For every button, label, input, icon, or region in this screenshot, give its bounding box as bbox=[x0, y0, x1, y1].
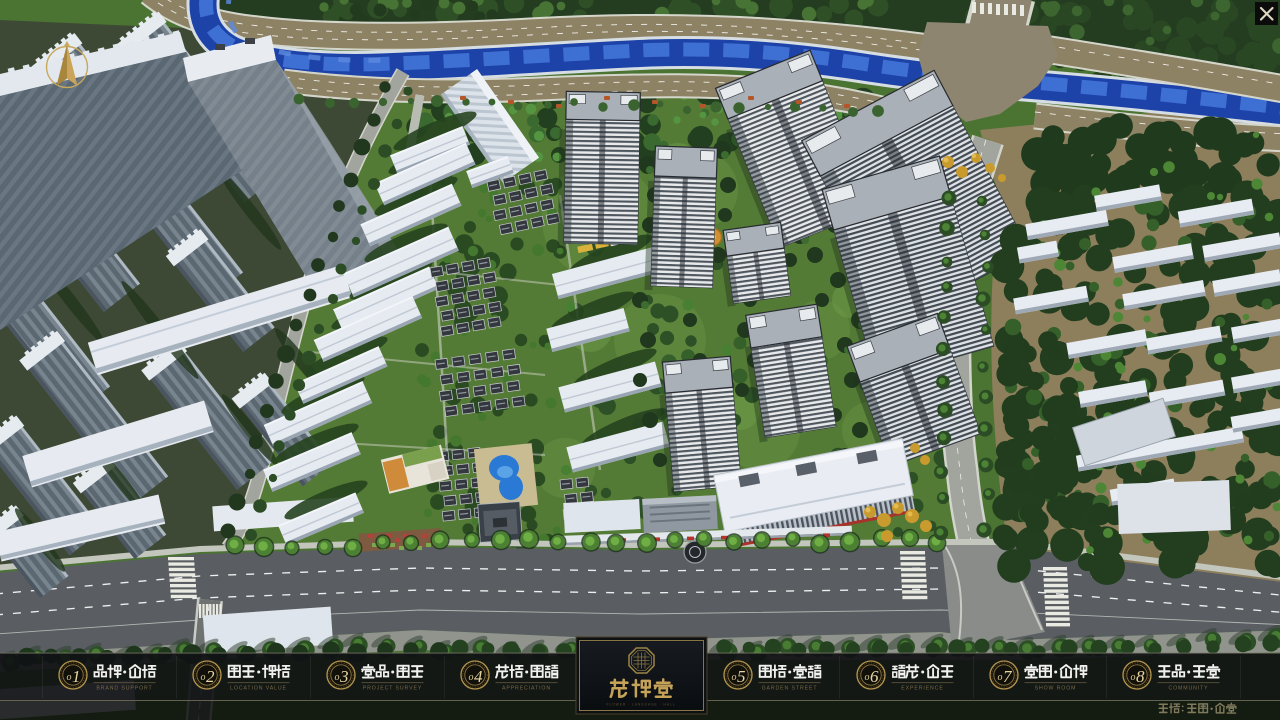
svg-text:o: o bbox=[1131, 672, 1136, 683]
svg-text:FLOWER · LANGUAGE · HALL: FLOWER · LANGUAGE · HALL bbox=[607, 703, 676, 707]
svg-text:o: o bbox=[865, 672, 870, 683]
svg-text:4: 4 bbox=[474, 667, 483, 686]
svg-text:SHOW ROOM: SHOW ROOM bbox=[1035, 686, 1077, 692]
svg-text:o: o bbox=[335, 672, 340, 683]
svg-text:EXPERIENCE: EXPERIENCE bbox=[901, 686, 943, 692]
svg-text:GARDEN STREET: GARDEN STREET bbox=[762, 686, 818, 692]
svg-text:3: 3 bbox=[339, 667, 349, 686]
svg-text:APPRECIATION: APPRECIATION bbox=[502, 686, 551, 692]
svg-text:8: 8 bbox=[1136, 667, 1145, 686]
svg-text:BRAND SUPPORT: BRAND SUPPORT bbox=[96, 686, 152, 692]
svg-text:6: 6 bbox=[870, 667, 879, 686]
svg-text:COMMUNITY: COMMUNITY bbox=[1168, 686, 1208, 692]
svg-text:o: o bbox=[201, 672, 206, 683]
svg-text:PROJECT SURVEY: PROJECT SURVEY bbox=[363, 686, 422, 692]
svg-text:o: o bbox=[67, 672, 72, 683]
svg-text:o: o bbox=[469, 672, 474, 683]
svg-text:5: 5 bbox=[737, 667, 746, 686]
svg-text:o: o bbox=[998, 672, 1003, 683]
svg-text:o: o bbox=[732, 672, 737, 683]
svg-text:LOCATION VALUE: LOCATION VALUE bbox=[230, 686, 287, 692]
svg-text:2: 2 bbox=[206, 667, 215, 686]
svg-text:1: 1 bbox=[72, 667, 81, 686]
